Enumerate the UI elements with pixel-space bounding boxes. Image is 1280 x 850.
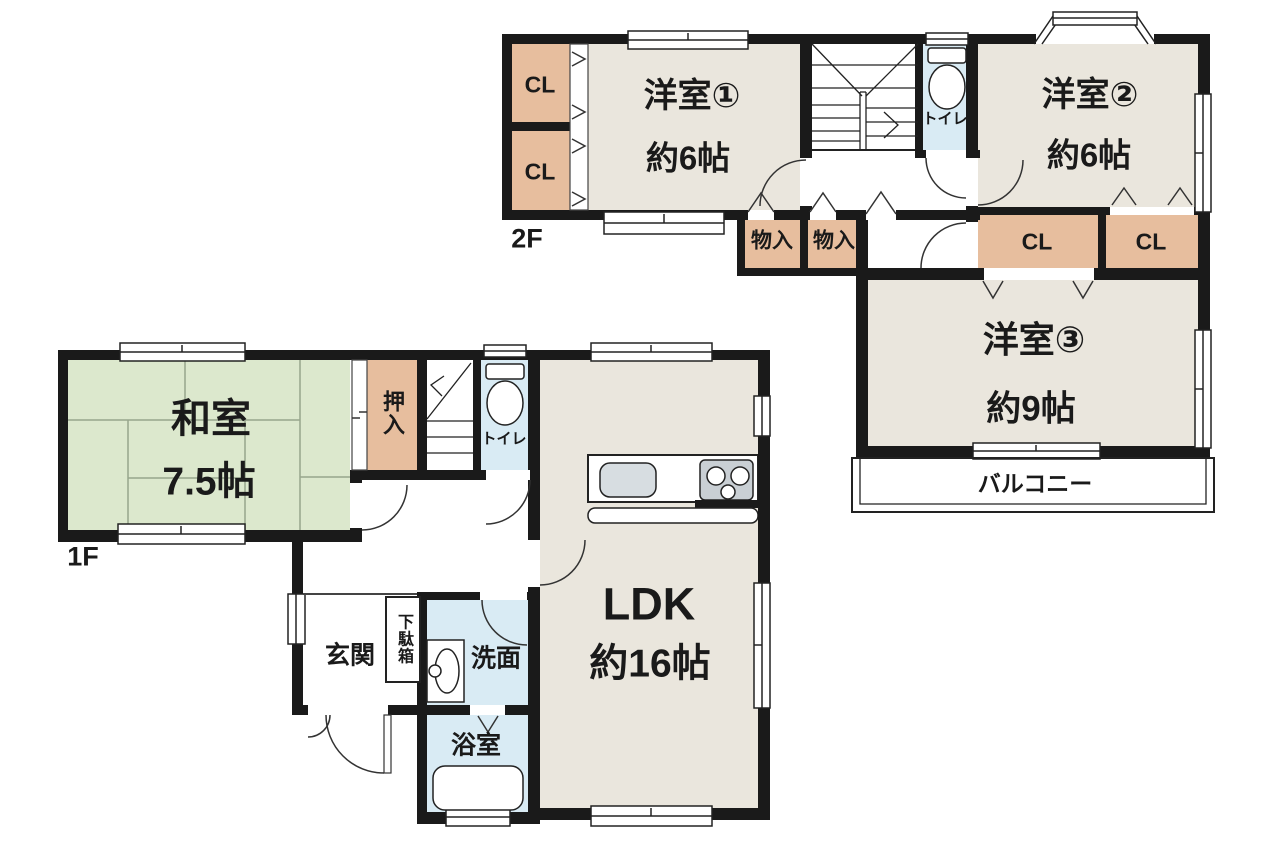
toilet-1f-label: トイレ <box>481 432 526 447</box>
room-ldk-area: 約16帖 <box>589 645 710 684</box>
storage-2f-b-label: 物入 <box>813 231 855 252</box>
closet-2f-c-label: CL <box>1022 231 1053 254</box>
closet-bifold-strip <box>570 44 588 210</box>
room-yoshitsu2-area: 約6帖 <box>1047 139 1131 172</box>
window-bath-bottom <box>446 809 510 826</box>
room-yoshitsu2-name: 洋室② <box>1042 78 1139 112</box>
room-yoshitsu2-floor <box>978 44 1198 207</box>
entrance-door-leaf <box>384 715 391 773</box>
door-arc-toilet2f <box>926 158 966 198</box>
window-washitsu-bottom <box>118 524 245 544</box>
stairs-1f <box>427 363 473 453</box>
washbasin-icon <box>427 640 464 702</box>
oshiire-sliding-door <box>352 360 367 470</box>
toilet-2f-icon <box>928 48 966 109</box>
genkan-label: 玄関 <box>325 644 375 669</box>
closet-2f-d-label: CL <box>1136 231 1167 254</box>
senmen-label: 洗面 <box>471 647 521 672</box>
closet-2f-a-label: CL <box>525 74 556 97</box>
room-yoshitsu1-name: 洋室① <box>644 79 741 113</box>
closet-2f-b-label: CL <box>525 161 556 184</box>
window-yoshitsu3-balcony <box>973 443 1100 459</box>
window-yoshitsu1-bottom <box>604 212 724 234</box>
floor-2f-label: 2F <box>511 226 543 253</box>
room-washitsu-floor <box>68 360 350 530</box>
room-yoshitsu3-area: 約9帖 <box>986 392 1075 427</box>
bathtub-icon <box>433 766 523 810</box>
bath-label: 浴室 <box>451 734 501 759</box>
window-yoshitsu1-top <box>628 31 748 49</box>
window-genkan-left <box>288 594 305 644</box>
window-ldk-bottom <box>591 806 712 826</box>
window-yoshitsu2-right <box>1195 94 1211 212</box>
getabako-label: 下駄箱 <box>395 614 411 665</box>
window-yoshitsu3-right <box>1195 330 1211 448</box>
door-arc-hall2f <box>921 223 966 268</box>
room-washitsu-area: 7.5帖 <box>162 463 255 502</box>
window-washitsu-top <box>120 343 245 361</box>
storage-2f-a-label: 物入 <box>751 231 793 252</box>
window-ldk-top <box>591 343 712 361</box>
toilet-1f-icon <box>486 364 524 425</box>
room-washitsu-name: 和室 <box>171 399 251 439</box>
window-ldk-right-small <box>754 396 770 436</box>
door-arc-toilet1f <box>486 480 530 524</box>
window-toilet2f-top <box>926 33 968 45</box>
floor-1f-label: 1F <box>67 544 99 571</box>
room-yoshitsu1-area: 約6帖 <box>646 142 730 175</box>
oshiire-label: 押入 <box>381 390 403 436</box>
kitchen-counter <box>588 455 758 523</box>
kitchen-sink-icon <box>600 463 656 497</box>
floor-plan: CL CL 洋室① 約6帖 トイレ 洋室② 約6帖 物入 物入 CL CL 洋室… <box>0 0 1280 850</box>
room-yoshitsu3-name: 洋室③ <box>983 322 1085 358</box>
balcony-label: バルコニー <box>978 473 1093 496</box>
door-arc-washitsu <box>362 485 407 530</box>
room-yoshitsu1-floor <box>572 44 800 210</box>
stairs-2f <box>812 44 918 150</box>
room-ldk-name: LDK <box>603 582 695 627</box>
toilet-2f-label: トイレ <box>922 112 967 127</box>
window-ldk-right-large <box>754 583 770 708</box>
entrance-door-arc <box>326 715 384 773</box>
window-toilet1f-top <box>484 345 526 357</box>
